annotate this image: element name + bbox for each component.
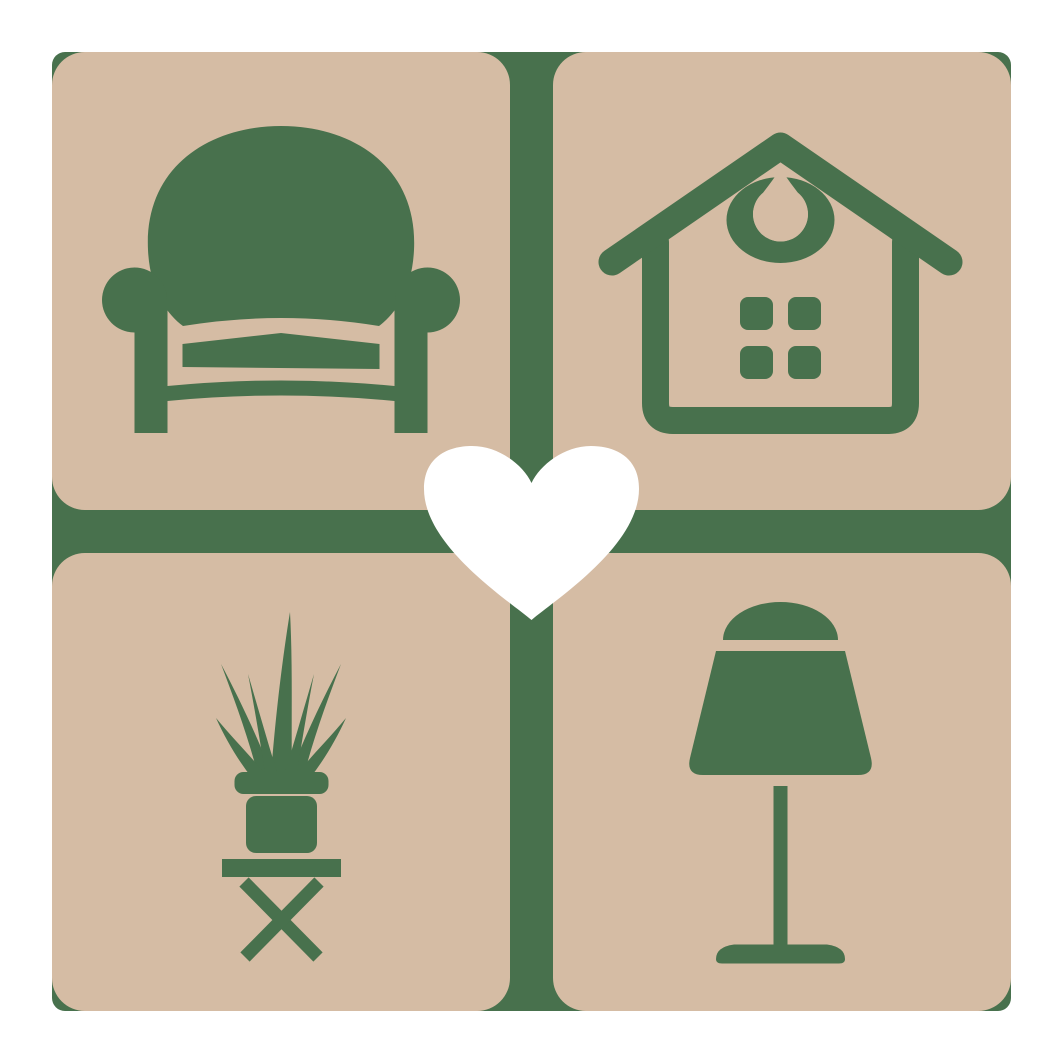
quadrant-bottom-right: [553, 553, 1011, 1011]
armchair-left-leg: [135, 300, 168, 433]
plant-pot-body: [246, 796, 317, 853]
house-window-pane: [740, 297, 773, 330]
lamp-base: [716, 945, 845, 964]
quadrant-bottom-left: [52, 553, 510, 1011]
house-window-pane: [788, 346, 821, 379]
lamp-stem: [774, 786, 788, 946]
armchair-right-leg: [395, 300, 428, 433]
quadrant-top-left: [52, 52, 510, 510]
home-decor-logo: [0, 0, 1063, 1063]
tile-background: [553, 52, 1011, 510]
plant-stool-top: [222, 859, 341, 877]
lamp-shade: [689, 651, 872, 775]
house-window-pane: [788, 297, 821, 330]
house-window-pane: [740, 346, 773, 379]
armchair-back: [148, 126, 414, 326]
quadrant-top-right: [553, 52, 1011, 510]
plant-pot-rim: [235, 772, 329, 794]
logo-canvas: [0, 0, 1063, 1063]
